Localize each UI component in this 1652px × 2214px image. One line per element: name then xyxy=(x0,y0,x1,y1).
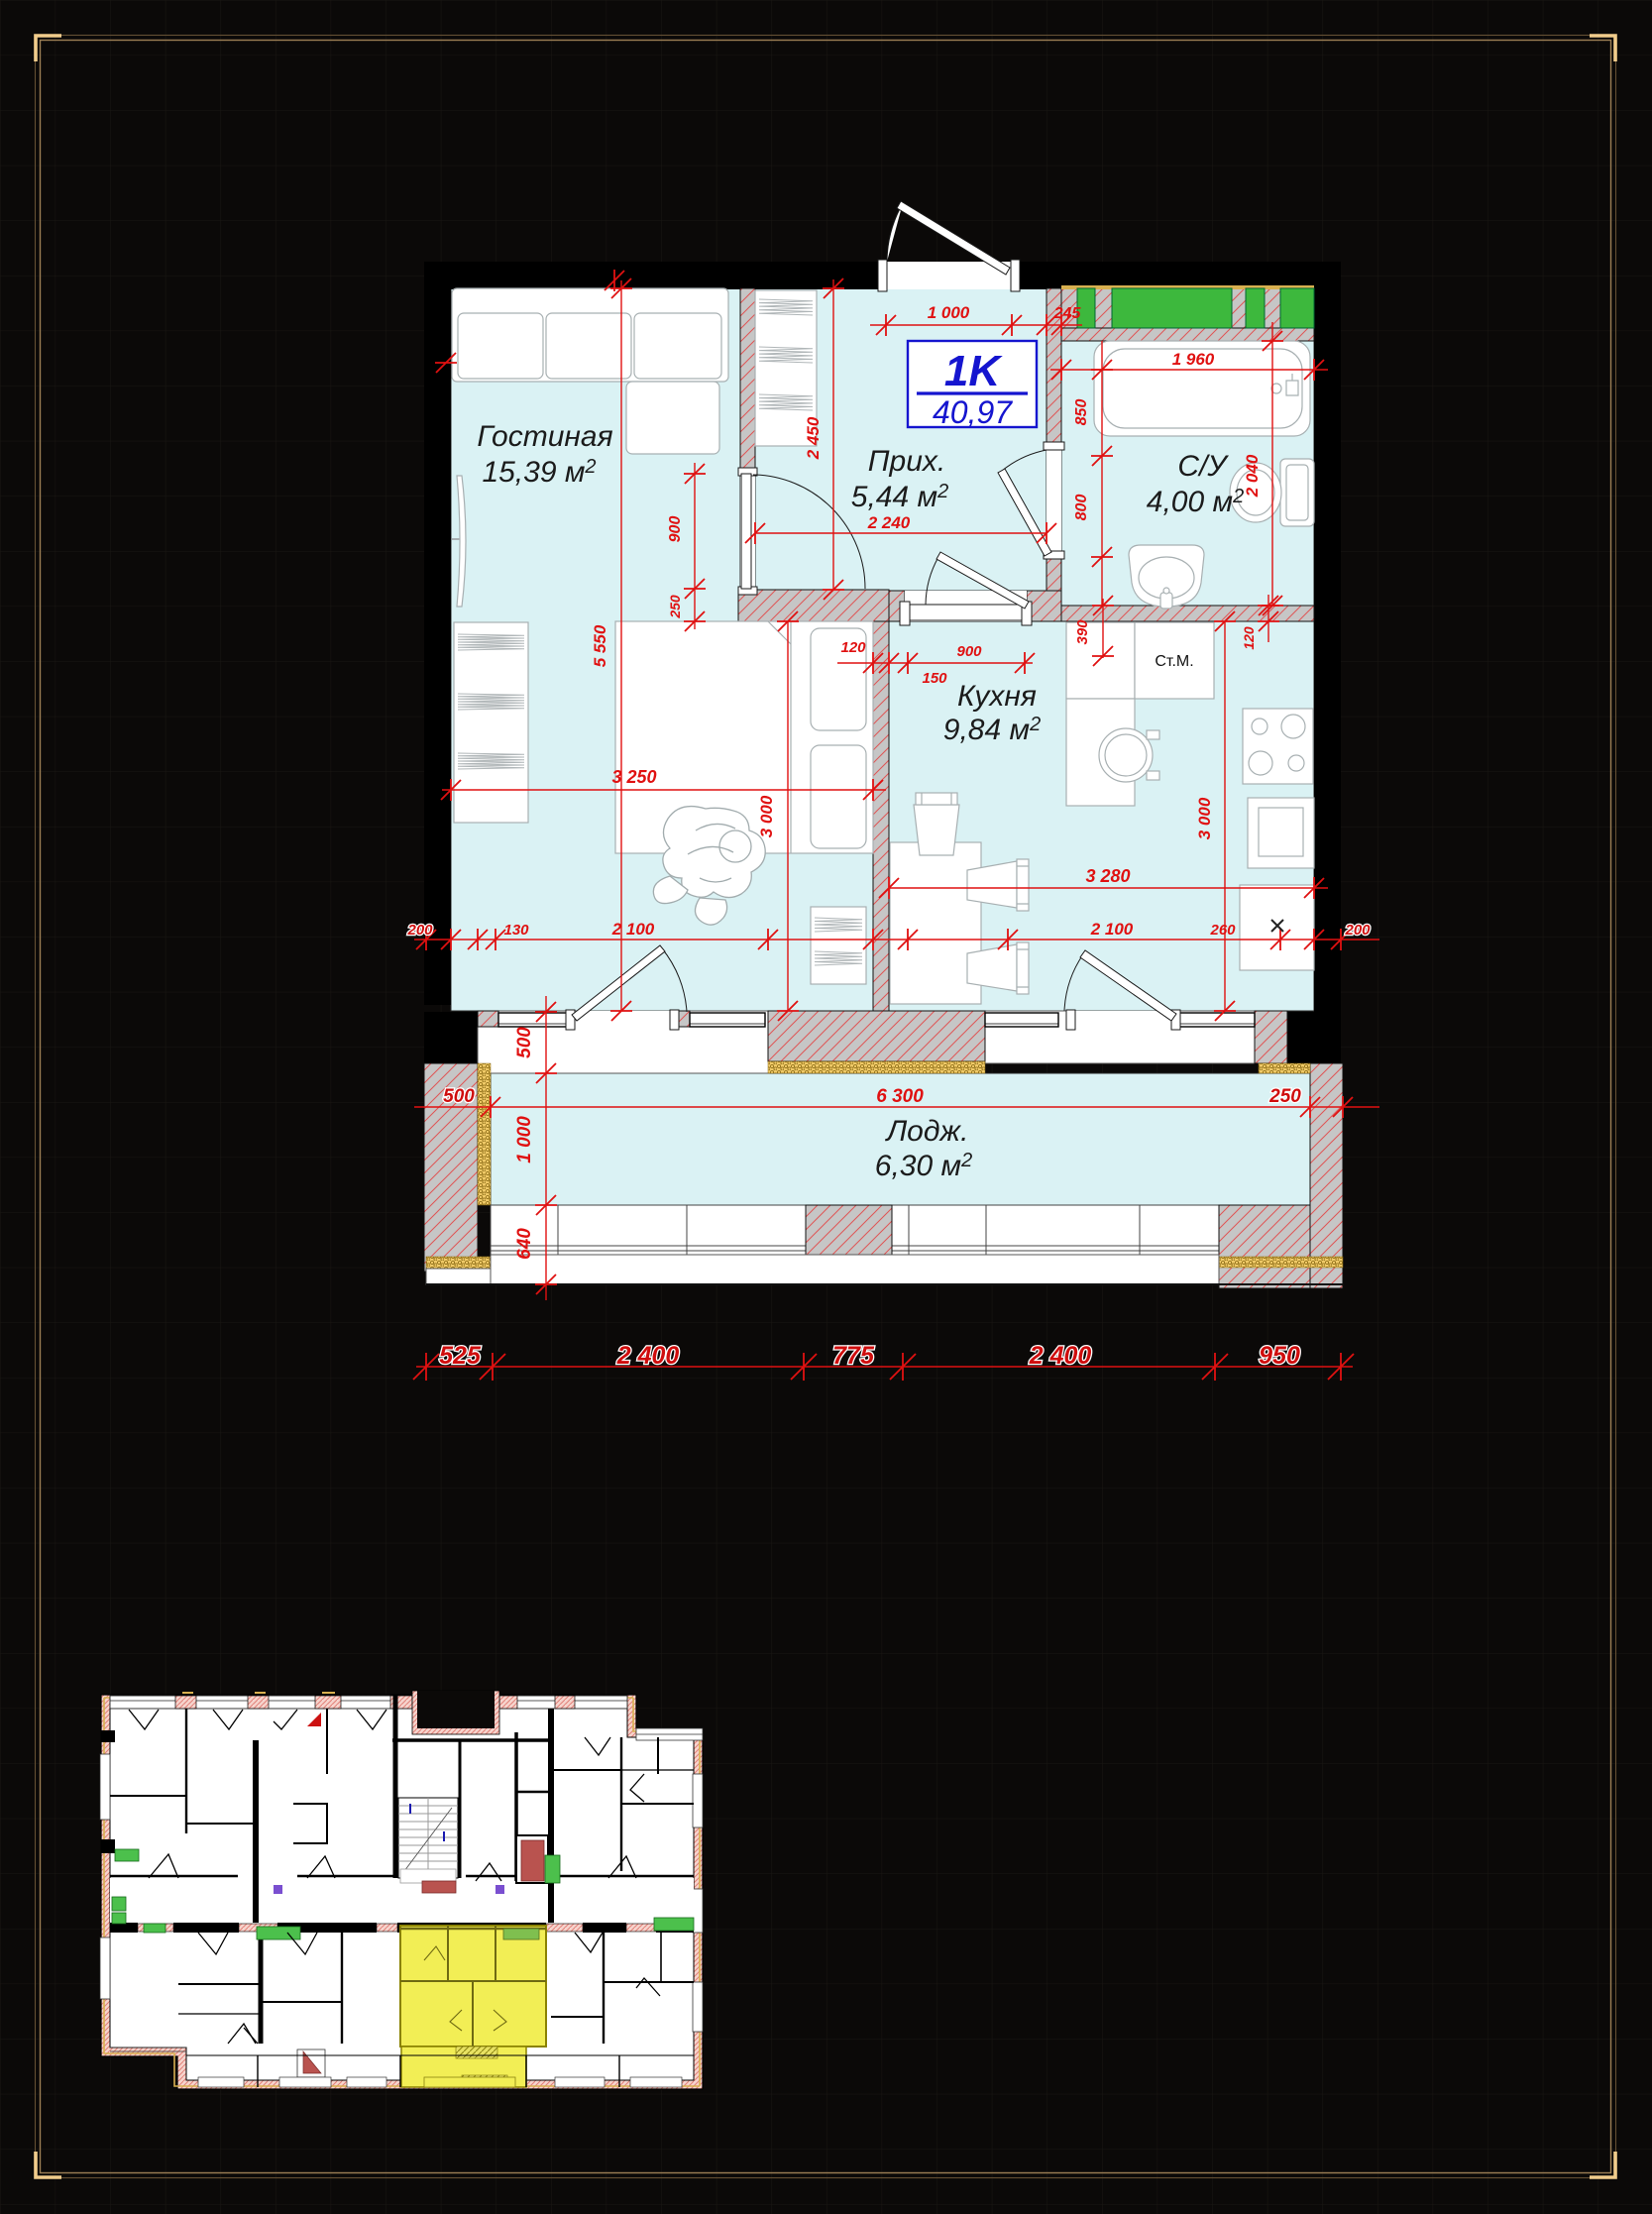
svg-text:2 400: 2 400 xyxy=(616,1342,680,1370)
svg-text:Лодж.: Лодж. xyxy=(885,1115,969,1148)
svg-text:3 000: 3 000 xyxy=(757,795,776,837)
svg-text:2 240: 2 240 xyxy=(867,513,911,532)
svg-text:Прих.: Прих. xyxy=(868,445,945,478)
svg-text:850: 850 xyxy=(1073,399,1090,426)
svg-text:2 450: 2 450 xyxy=(804,416,823,460)
svg-text:245: 245 xyxy=(1053,305,1082,322)
svg-text:250: 250 xyxy=(667,595,683,619)
svg-text:1K: 1K xyxy=(944,347,1003,395)
svg-text:3 250: 3 250 xyxy=(611,767,656,787)
svg-text:900: 900 xyxy=(956,643,982,660)
svg-text:900: 900 xyxy=(667,516,684,543)
svg-text:Кухня: Кухня xyxy=(957,680,1037,713)
svg-text:2 100: 2 100 xyxy=(611,920,655,939)
svg-text:500: 500 xyxy=(443,1086,475,1107)
svg-text:800: 800 xyxy=(1073,495,1090,521)
svg-text:120: 120 xyxy=(1241,626,1257,650)
svg-text:3 280: 3 280 xyxy=(1085,866,1130,886)
svg-text:5 550: 5 550 xyxy=(591,624,609,667)
svg-text:3 000: 3 000 xyxy=(1195,797,1214,839)
svg-text:40,97: 40,97 xyxy=(933,394,1013,430)
svg-text:950: 950 xyxy=(1259,1342,1300,1370)
svg-text:С/У: С/У xyxy=(1177,450,1229,483)
svg-text:9,84 м2: 9,84 м2 xyxy=(943,714,1041,746)
svg-text:2 100: 2 100 xyxy=(1090,920,1134,939)
svg-text:390: 390 xyxy=(1074,619,1091,645)
svg-text:775: 775 xyxy=(832,1342,875,1370)
svg-text:6 300: 6 300 xyxy=(876,1086,924,1107)
svg-text:1 000: 1 000 xyxy=(514,1116,535,1163)
svg-text:260: 260 xyxy=(1209,922,1236,939)
svg-text:1 960: 1 960 xyxy=(1172,350,1215,369)
svg-text:250: 250 xyxy=(1268,1086,1301,1107)
svg-text:200: 200 xyxy=(406,922,433,939)
svg-text:640: 640 xyxy=(514,1228,535,1260)
svg-text:5,44 м2: 5,44 м2 xyxy=(851,481,948,513)
svg-text:15,39 м2: 15,39 м2 xyxy=(482,456,596,489)
svg-text:500: 500 xyxy=(514,1027,535,1058)
svg-text:130: 130 xyxy=(503,922,529,939)
svg-text:200: 200 xyxy=(1344,922,1371,939)
svg-text:Ст.М.: Ст.М. xyxy=(1155,653,1193,670)
svg-text:120: 120 xyxy=(840,639,866,656)
svg-text:4,00 м2: 4,00 м2 xyxy=(1147,486,1244,518)
svg-text:150: 150 xyxy=(922,670,947,687)
svg-text:2 400: 2 400 xyxy=(1029,1342,1092,1370)
svg-text:Гостиная: Гостиная xyxy=(477,420,612,453)
svg-text:1 000: 1 000 xyxy=(928,303,970,322)
svg-text:525: 525 xyxy=(439,1342,482,1370)
svg-text:2 040: 2 040 xyxy=(1243,454,1262,498)
svg-text:6,30 м2: 6,30 м2 xyxy=(875,1150,972,1182)
